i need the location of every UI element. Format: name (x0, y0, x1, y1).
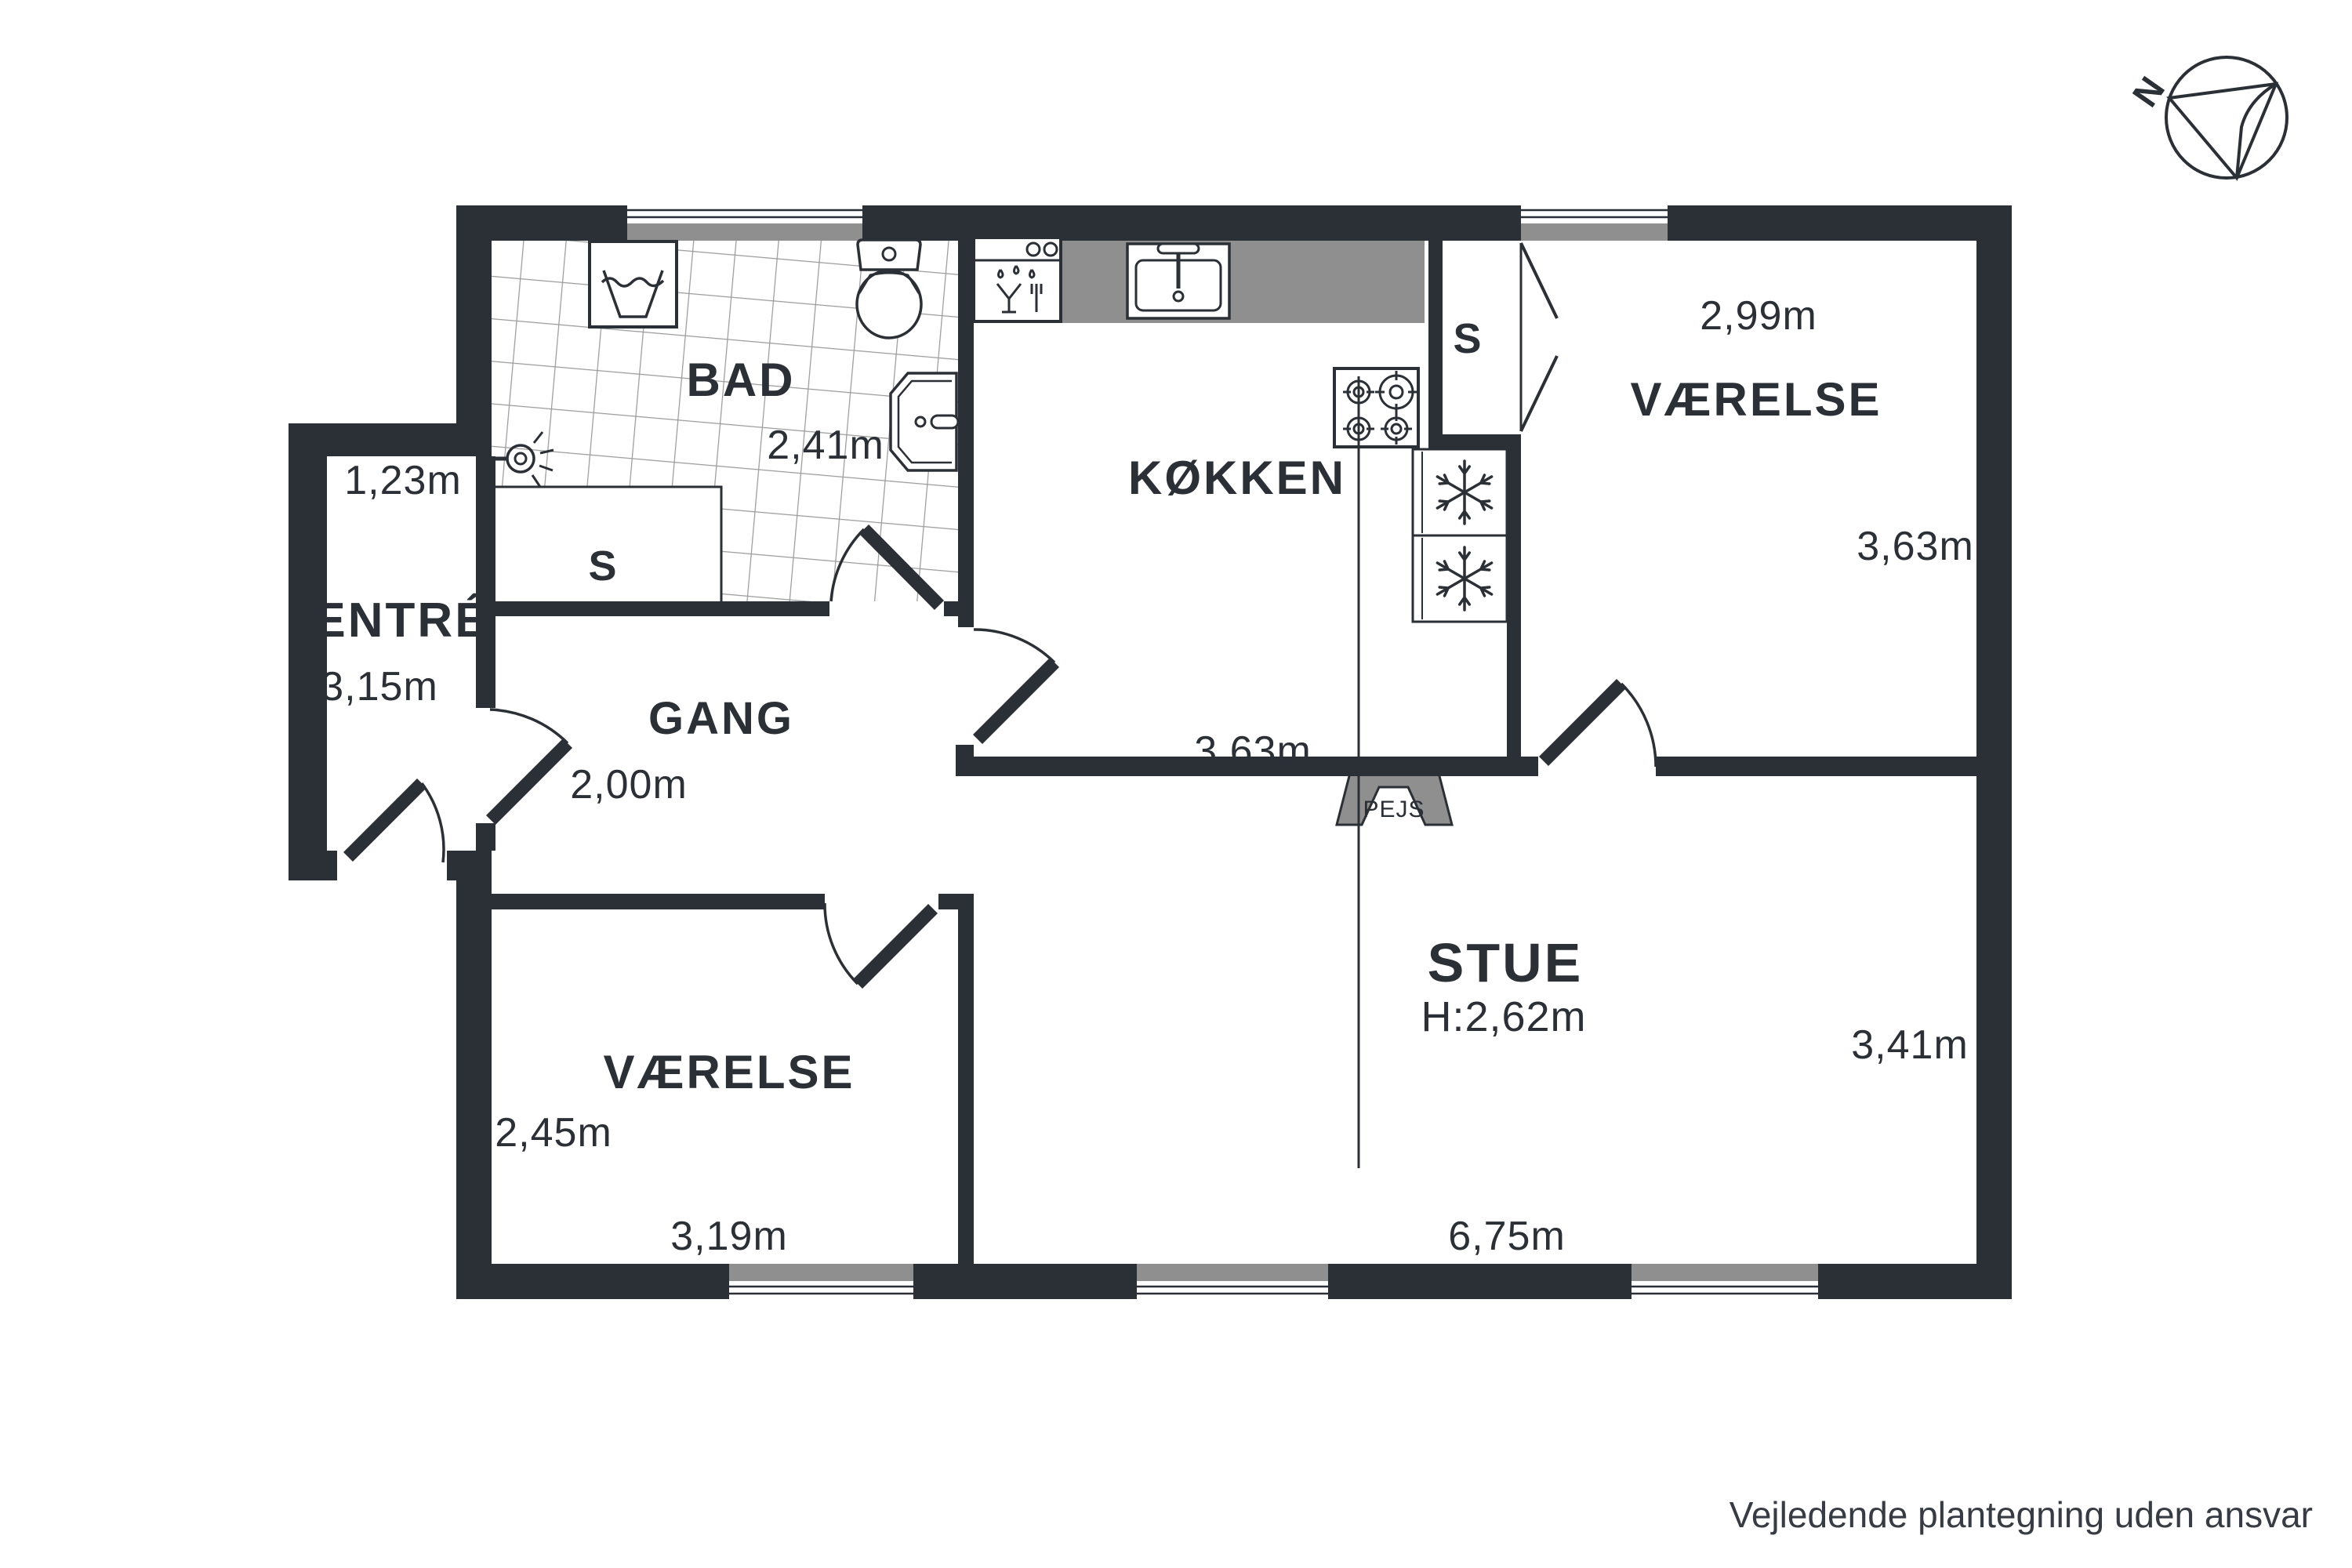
vaerelse-sw-width: 3,19m (670, 1214, 788, 1259)
vaerelse-ne-label: VÆRELSE (1630, 373, 1882, 426)
washing-machine-icon (590, 241, 677, 327)
wall-entre-right-stub (476, 823, 495, 851)
bad-label: BAD (687, 354, 796, 406)
stue-ceiling-height: H:2,62m (1421, 993, 1586, 1040)
gang-width: 2,00m (570, 762, 688, 808)
countertop (1061, 241, 1425, 323)
vaerelse-sw-label: VÆRELSE (603, 1046, 855, 1098)
entre-width: 1,23m (344, 458, 462, 503)
wall-entre-bottom-left (289, 851, 337, 880)
door-koekken (974, 630, 1054, 739)
fireplace-icon: PEJS (1337, 773, 1452, 825)
wall-left-upper (456, 205, 492, 456)
wall-bad-kitchen-divider (958, 241, 974, 627)
stue-width: 6,75m (1448, 1214, 1566, 1259)
wall-closet-left (1428, 241, 1443, 434)
wall-entre-right (476, 456, 495, 708)
window-stue-b (1632, 1264, 1818, 1299)
window-vaerelse-ne (1521, 205, 1668, 241)
dishwasher-icon (974, 238, 1061, 321)
compass-north-label: N (2125, 69, 2173, 114)
disclaimer-text: Vejledende plantegning uden ansvar (1730, 1494, 2313, 1535)
wall-vaerelse-stue-divider (958, 894, 974, 1264)
closet-vaerelse-doors (1521, 243, 1557, 431)
bath-sink-icon (891, 373, 958, 470)
door-vaerelse-ne (1544, 684, 1656, 767)
window-bad (627, 205, 862, 241)
wall-bad-bottom (492, 601, 829, 616)
bad-width: 2,41m (767, 423, 884, 468)
vaerelse-sw-height: 2,45m (495, 1110, 612, 1156)
floor-plan-page: PEJS (0, 0, 2352, 1568)
koekken-width: 3,63m (1194, 728, 1312, 774)
wall-stue-north-b (1656, 757, 1976, 776)
entre-height: 3,15m (321, 664, 438, 710)
fireplace-label: PEJS (1363, 797, 1425, 822)
entre-label: ENTRÉ (313, 593, 489, 648)
gang-label: GANG (648, 693, 794, 744)
floor-plan-drawing: PEJS (0, 0, 2352, 1568)
wall-right (1976, 205, 2012, 1299)
vaerelse-ne-height: 3,63m (1857, 524, 1974, 569)
wall-entre-bottom-right (447, 851, 492, 880)
window-vaerelse-sw (729, 1264, 913, 1299)
vaerelse-ne-width: 2,99m (1700, 293, 1817, 339)
toilet-icon (857, 240, 921, 338)
koekken-label: KØKKEN (1128, 452, 1346, 504)
vaerelse-closet-label: S (1453, 315, 1483, 362)
door-front (348, 783, 444, 862)
wall-entre-top (289, 423, 492, 456)
wall-entre-left (289, 423, 327, 880)
fridge-freezer-icons (1413, 449, 1507, 622)
wall-vaerelse-sw-top (492, 894, 825, 909)
bad-closet-label: S (588, 543, 619, 590)
kitchen-sink-icon (1127, 244, 1229, 318)
wall-kitchen-vaerelse-divider (1507, 434, 1521, 772)
window-stue-a (1137, 1264, 1328, 1299)
door-vaerelse-sw (825, 903, 933, 984)
stue-label: STUE (1428, 932, 1584, 993)
door-entre-gang (490, 710, 568, 820)
north-compass-icon: N (2125, 57, 2287, 178)
wall-bad-bottom-stub (944, 601, 960, 616)
wall-left-lower (456, 880, 492, 1299)
stue-height: 3,41m (1851, 1022, 1969, 1068)
